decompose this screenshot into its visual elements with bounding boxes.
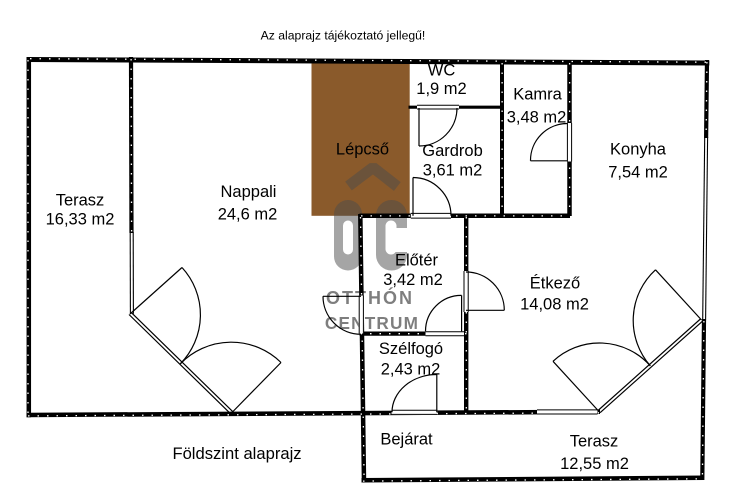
svg-text:Terasz: Terasz bbox=[570, 433, 619, 451]
svg-text:12,55 m2: 12,55 m2 bbox=[560, 455, 629, 473]
svg-text:7,54 m2: 7,54 m2 bbox=[608, 164, 668, 182]
svg-text:14,08 m2: 14,08 m2 bbox=[520, 296, 589, 314]
svg-text:Terasz: Terasz bbox=[56, 192, 105, 210]
svg-text:1,9 m2: 1,9 m2 bbox=[416, 80, 466, 98]
svg-text:WC: WC bbox=[428, 62, 456, 80]
svg-text:Az alaprajz tájékoztató jelleg: Az alaprajz tájékoztató jellegű! bbox=[261, 29, 426, 43]
svg-text:3,48 m2: 3,48 m2 bbox=[507, 109, 567, 127]
svg-text:16,33 m2: 16,33 m2 bbox=[46, 211, 115, 229]
svg-text:Nappali: Nappali bbox=[221, 183, 277, 201]
svg-text:24,6 m2: 24,6 m2 bbox=[218, 206, 278, 224]
svg-text:Étkező: Étkező bbox=[530, 274, 580, 293]
svg-text:OTTHÓN: OTTHÓN bbox=[326, 287, 414, 308]
svg-text:Előtér: Előtér bbox=[395, 252, 439, 270]
svg-text:CENTRUM: CENTRUM bbox=[325, 313, 419, 333]
svg-text:Földszint alaprajz: Földszint alaprajz bbox=[172, 444, 301, 463]
svg-text:Konyha: Konyha bbox=[610, 141, 667, 159]
svg-text:Gardrob: Gardrob bbox=[422, 142, 483, 160]
svg-text:Kamra: Kamra bbox=[513, 86, 562, 104]
svg-text:Bejárat: Bejárat bbox=[380, 431, 433, 449]
svg-text:Lépcső: Lépcső bbox=[336, 141, 389, 159]
svg-text:3,42 m2: 3,42 m2 bbox=[383, 271, 443, 289]
svg-text:Szélfogó: Szélfogó bbox=[379, 340, 443, 358]
svg-text:3,61 m2: 3,61 m2 bbox=[423, 162, 483, 180]
svg-text:2,43 m2: 2,43 m2 bbox=[381, 361, 441, 379]
